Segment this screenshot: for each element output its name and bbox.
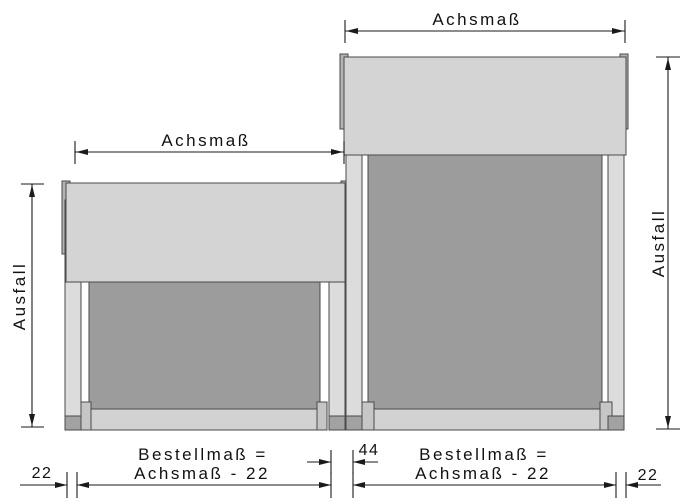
arrowhead-right (331, 149, 343, 155)
left-unit-fabric-panel (89, 282, 320, 409)
right-unit-rail-foot-right (608, 416, 624, 430)
arrowhead-left (626, 482, 638, 488)
left-unit-bar-endcap-right (317, 402, 327, 430)
left-unit-cassette-box (66, 183, 345, 282)
arrowhead-down (29, 414, 35, 426)
dimension-achsmass-left-unit: Achsmaß (75, 131, 344, 164)
bestellmass-right-line1: Bestellmaß = (419, 445, 549, 464)
arrowhead-right (319, 459, 331, 465)
arrowhead-right (319, 482, 331, 488)
bestellmass-left-line1: Bestellmaß = (138, 445, 268, 464)
arrowhead-right (612, 28, 624, 34)
left-unit-rail-foot-right (329, 416, 345, 430)
arrowhead-down (665, 416, 671, 428)
ausfall-right-label: Ausfall (649, 209, 668, 278)
arrowhead-up (29, 185, 35, 197)
arrowhead-left (346, 28, 358, 34)
right-unit-rail-foot-left (346, 416, 362, 430)
left-unit-bar-endcap-left (81, 402, 91, 430)
bestellmass-left-line2: Achsmaß - 22 (134, 464, 270, 483)
arrowhead-right (604, 482, 616, 488)
dimension-bottom-chain: 22 22 Bestellmaß = Achsmaß - 22 Bestellm… (20, 445, 661, 498)
right-unit-cassette-box (344, 57, 626, 155)
gap-22-right-label: 22 (638, 467, 659, 484)
dimension-ausfall-left: Ausfall (10, 184, 44, 427)
gap-44-label: 44 (359, 442, 380, 459)
right-unit-bar-endcap-left (362, 402, 374, 430)
right-unit-fabric-panel (368, 155, 602, 409)
left-unit-bottom-bar (91, 409, 317, 430)
achsmass-left-label: Achsmaß (161, 131, 250, 150)
left-unit-rail-foot-left (65, 416, 81, 430)
right-awning-unit (340, 54, 628, 430)
arrowhead-up (665, 58, 671, 70)
bestellmass-right-line2: Achsmaß - 22 (415, 464, 551, 483)
arrowhead-left (77, 482, 89, 488)
left-awning-unit (62, 181, 349, 430)
arrowhead-right (55, 482, 67, 488)
right-unit-bottom-bar (374, 409, 600, 430)
technical-drawing-awning-dimensions: Achsmaß Achsmaß Ausfall Ausfall 44 (0, 0, 684, 504)
dimension-achsmass-right-unit: Achsmaß (345, 10, 625, 43)
arrowhead-left (76, 149, 88, 155)
arrowhead-left (353, 482, 365, 488)
dimension-gap-44: 44 (307, 442, 379, 474)
achsmass-top-label: Achsmaß (432, 10, 521, 29)
gap-22-left-label: 22 (32, 465, 53, 482)
arrowhead-left (353, 459, 365, 465)
dimension-ausfall-right: Ausfall (649, 57, 680, 429)
ausfall-left-label: Ausfall (10, 262, 29, 331)
